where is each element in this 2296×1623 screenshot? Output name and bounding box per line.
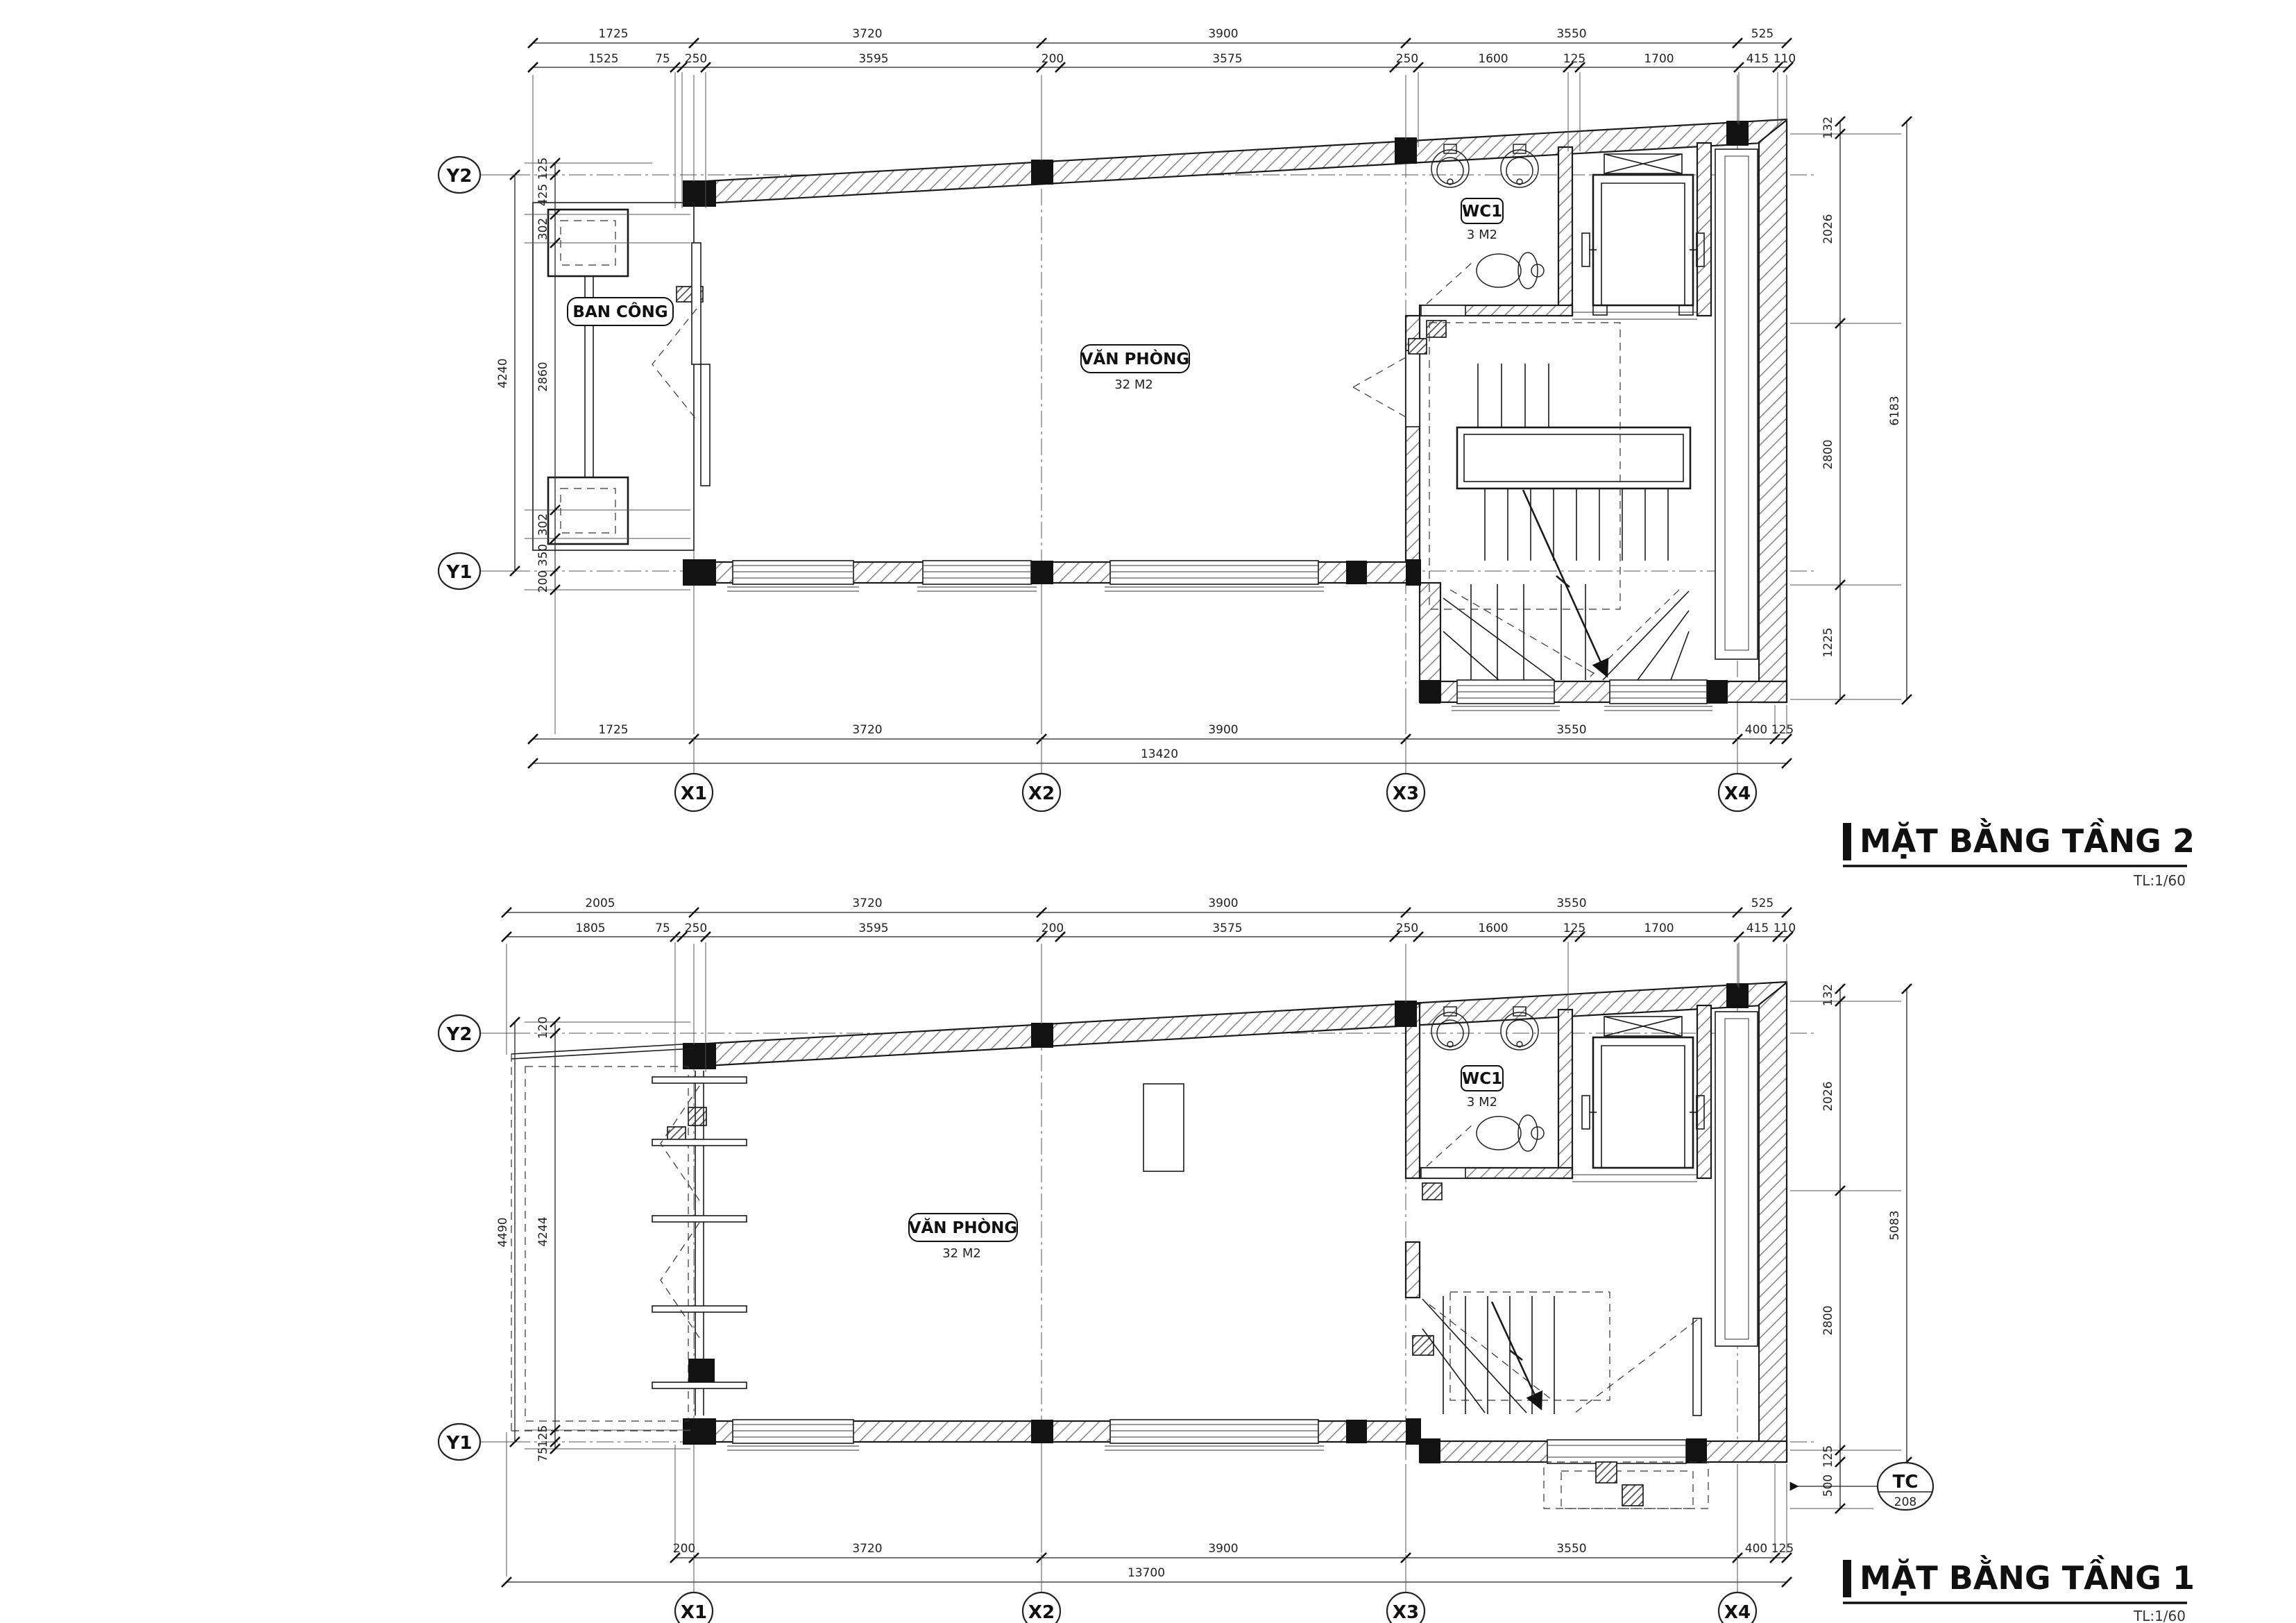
dim: 250 [685,921,707,935]
grid-bubble-y1: Y1 [446,1433,473,1454]
wc-area: 3 M2 [1467,1095,1497,1110]
dim: 500 [1821,1475,1835,1497]
dim: 75 [655,52,670,66]
dim: 350 [536,544,550,566]
dim: 125 [536,158,550,180]
dim: 200 [536,570,550,593]
grid-bubble-y2: Y2 [446,166,473,187]
floor-plan-drawing: VĂN PHÒNG 32 M2 WC1 3 M2 BAN CÔNG 1725 3… [0,0,2296,1623]
tc-symbol-bottom: 208 [1894,1495,1916,1509]
plan2-balcony [533,203,710,550]
dim: 3575 [1212,52,1242,66]
dim: 2800 [1821,1305,1835,1335]
dim: 1725 [598,723,628,737]
dim: 250 [685,52,707,66]
dim: 302 [536,218,550,240]
dim-total: 4240 [496,358,510,388]
dim: 3720 [852,897,882,910]
dim: 3720 [852,723,882,737]
grid-bubble-x2: X2 [1028,783,1055,804]
dim: 400 [1745,723,1767,737]
plan2-title-text: MẶT BẰNG TẦNG 2 [1860,818,2195,860]
plan1-elevator [1572,1012,1758,1346]
dim: 125 [1821,1445,1835,1468]
dim-total: 5083 [1888,1210,1902,1240]
dim: 125 [1771,1542,1794,1556]
dim: 132 [1821,984,1835,1006]
plan2-elevator [1572,149,1758,659]
dim: 2860 [536,362,550,391]
desk [1143,1084,1184,1171]
dim: 1700 [1644,921,1674,935]
grid-bubble-x4: X4 [1724,1602,1751,1623]
plan-1: VĂN PHÒNG 32 M2 WC1 3 M2 2005 3720 3900 … [439,897,2195,1623]
dim: 2026 [1821,214,1835,244]
plan2-room-labels: VĂN PHÒNG 32 M2 WC1 3 M2 BAN CÔNG [568,198,1503,392]
dim: 415 [1746,52,1769,66]
dim-total: 6183 [1888,396,1902,425]
grid-bubble-x4: X4 [1724,783,1751,804]
grid-bubble-x1: X1 [681,1602,707,1623]
grid-bubble-x2: X2 [1028,1602,1055,1623]
dim: 1525 [588,52,618,66]
dim: 132 [1821,117,1835,139]
dim: 3550 [1556,723,1586,737]
dim: 200 [1041,52,1064,66]
dim: 1700 [1644,52,1674,66]
grid-bubble-x3: X3 [1393,1602,1419,1623]
dim: 302 [536,513,550,536]
dim: 3595 [858,921,888,935]
grid-bubble-y1: Y1 [446,562,473,583]
dim: 75 [536,1447,550,1462]
dim: 125 [1563,52,1585,66]
dim: 1725 [598,27,628,41]
dim: 3900 [1208,1542,1238,1556]
dim: 4244 [536,1216,550,1246]
dim: 3900 [1208,27,1238,41]
dim: 3720 [852,1542,882,1556]
dim: 2026 [1821,1081,1835,1111]
dim: 425 [536,184,550,206]
grid-bubble-x1: X1 [681,783,707,804]
dim: 1600 [1478,921,1508,935]
dim: 250 [1396,52,1418,66]
dim: 3550 [1556,1542,1586,1556]
dim: 125 [1771,723,1794,737]
dim-total: 13700 [1128,1566,1165,1580]
office-label: VĂN PHÒNG [909,1218,1018,1237]
office-area: 32 M2 [1114,377,1153,392]
plan-2: VĂN PHÒNG 32 M2 WC1 3 M2 BAN CÔNG 1725 3… [439,27,2195,889]
balcony-label: BAN CÔNG [572,302,667,321]
dim: 400 [1745,1542,1767,1556]
drawing-sheet: VĂN PHÒNG 32 M2 WC1 3 M2 BAN CÔNG 1725 3… [0,0,2296,1623]
dim: 3900 [1208,723,1238,737]
dim: 75 [655,921,670,935]
plan1-stairs-entry [1422,1292,1708,1509]
plan2-stairs [1353,323,1690,680]
dim: 3900 [1208,897,1238,910]
dim: 1225 [1821,627,1835,657]
dim: 125 [536,1425,550,1447]
dim: 3575 [1212,921,1242,935]
tc-symbol-top: TC [1893,1472,1919,1493]
dim: 525 [1751,27,1774,41]
dim: 250 [1396,921,1418,935]
dim: 200 [1041,921,1064,935]
plan2-scale-text: TL:1/60 [2133,872,2186,889]
plan1-title: MẶT BẰNG TẦNG 1 TL:1/60 [1843,1555,2195,1623]
grid-bubble-y2: Y2 [446,1024,473,1045]
dim: 110 [1774,921,1796,935]
plan1-title-text: MẶT BẰNG TẦNG 1 [1860,1555,2195,1597]
dim: 3550 [1556,27,1586,41]
dim: 120 [536,1017,550,1039]
dim: 3595 [858,52,888,66]
dim: 525 [1751,897,1774,910]
plan1-scale-text: TL:1/60 [2133,1608,2186,1623]
dim: 415 [1746,921,1769,935]
wc-area: 3 M2 [1467,228,1497,242]
dim: 3550 [1556,897,1586,910]
plan2-title: MẶT BẰNG TẦNG 2 TL:1/60 [1843,818,2195,889]
dim: 3720 [852,27,882,41]
dim: 110 [1774,52,1796,66]
office-area: 32 M2 [942,1246,981,1261]
wc-label: WC1 [1462,203,1502,221]
tc-symbol: TC 208 [1797,1463,1933,1510]
dim: 2800 [1821,439,1835,469]
grid-bubble-x3: X3 [1393,783,1419,804]
dim: 1805 [575,921,605,935]
dim: 125 [1563,921,1585,935]
dim: 2005 [585,897,615,910]
wc-label: WC1 [1462,1070,1502,1088]
dim: 1600 [1478,52,1508,66]
dim-total: 13420 [1141,747,1178,761]
office-label: VĂN PHÒNG [1081,349,1190,368]
plan1-walls [667,982,1787,1463]
dim: 200 [673,1542,695,1556]
dim-total: 4490 [496,1217,510,1247]
